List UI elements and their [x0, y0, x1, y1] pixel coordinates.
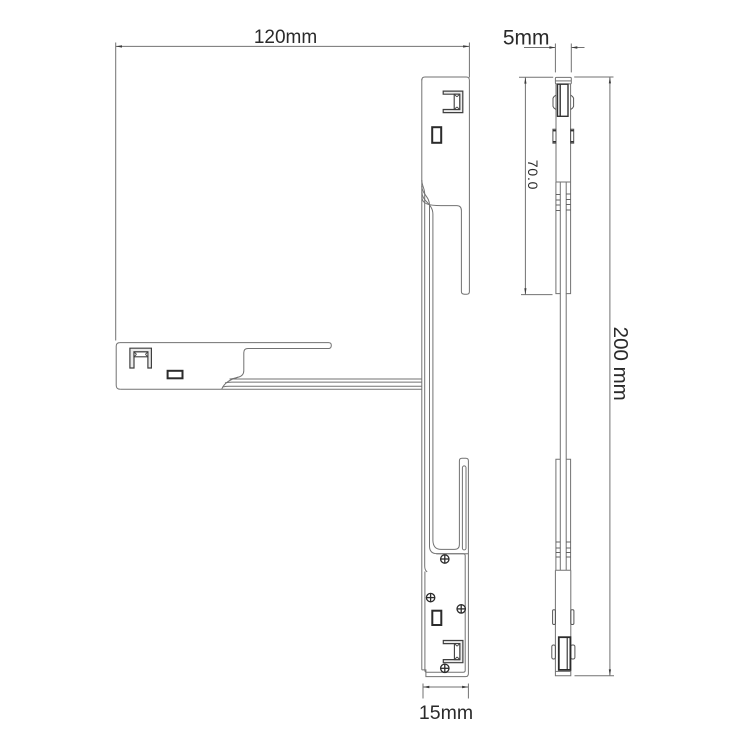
svg-text:200 mm: 200 mm	[609, 327, 632, 401]
svg-text:15mm: 15mm	[419, 702, 473, 724]
svg-text:70.0: 70.0	[525, 160, 541, 190]
svg-text:120mm: 120mm	[254, 27, 317, 48]
svg-text:5mm: 5mm	[503, 26, 550, 49]
